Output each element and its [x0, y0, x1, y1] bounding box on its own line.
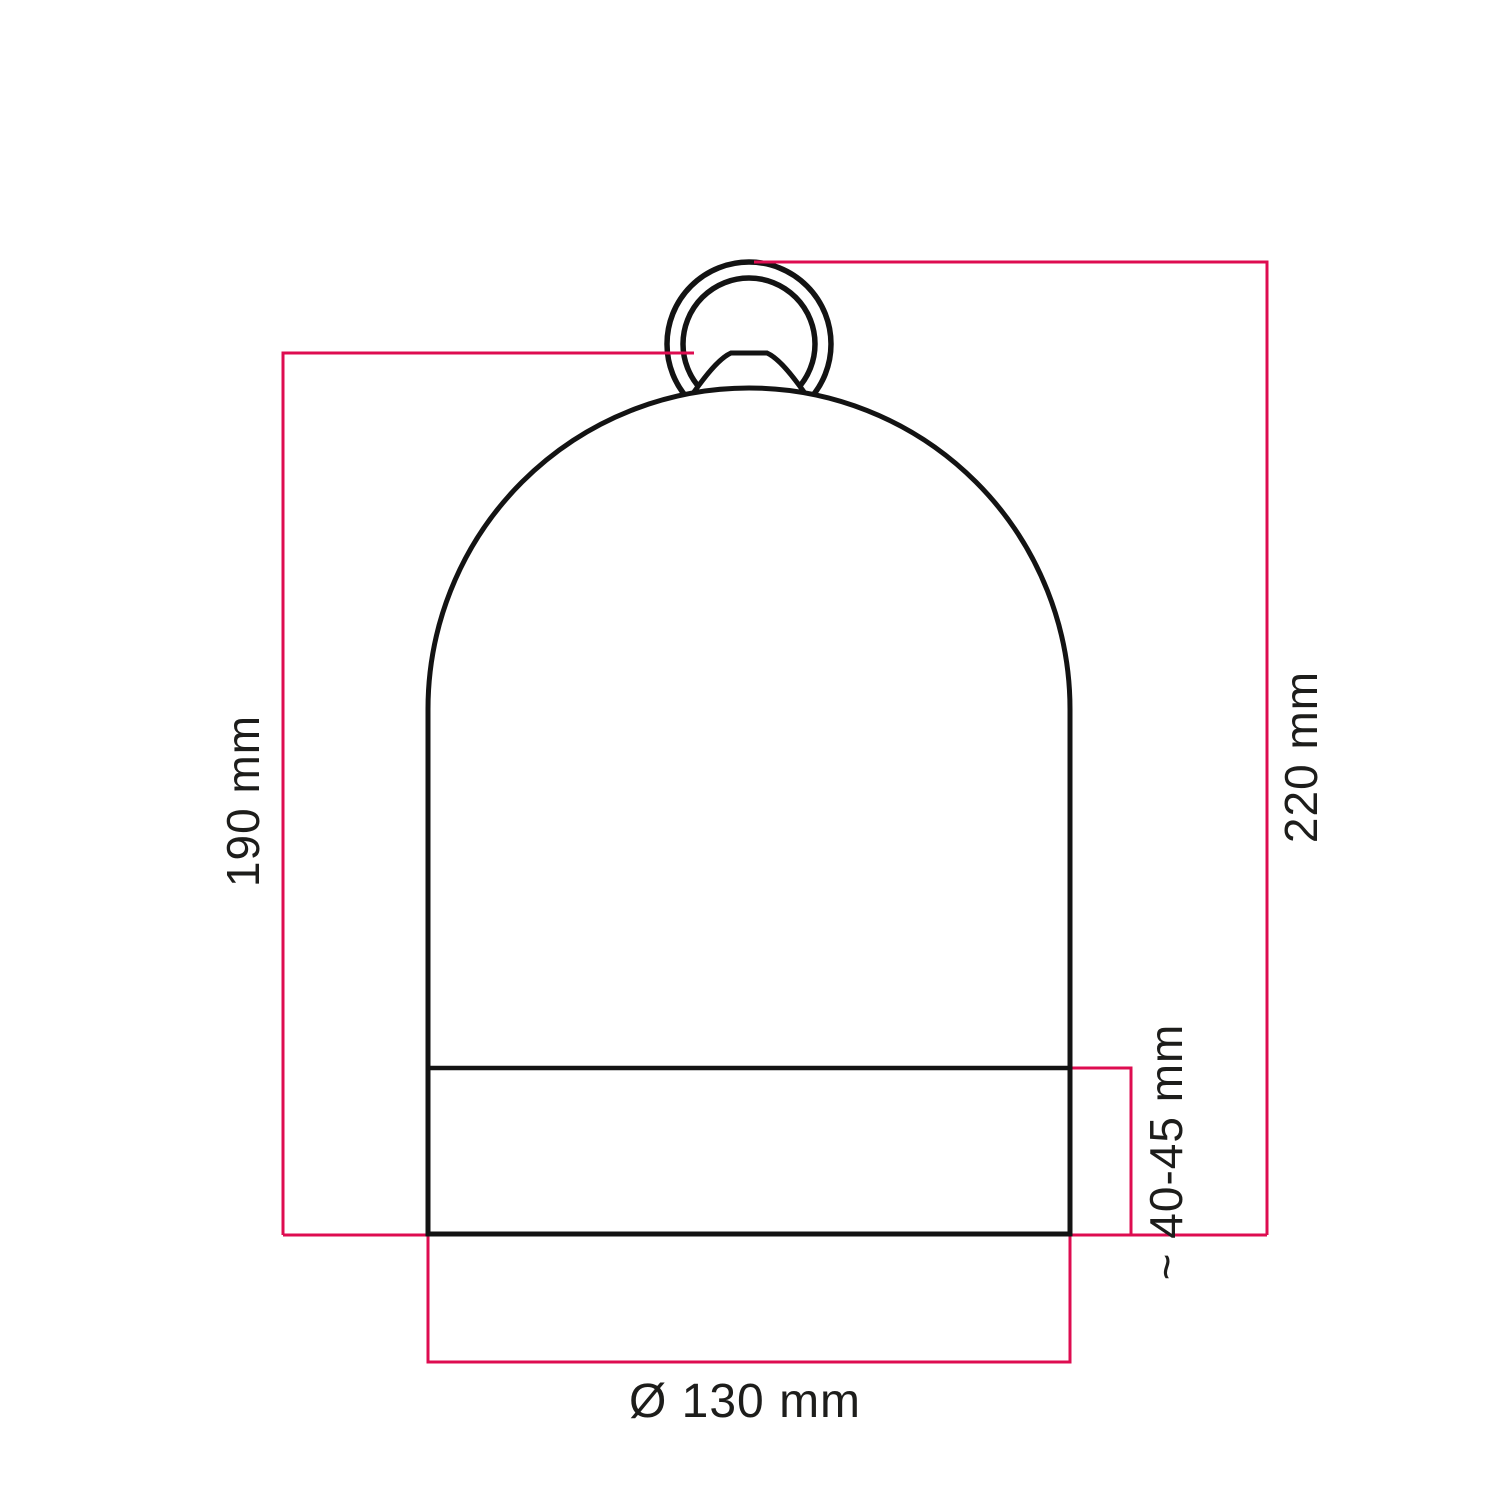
- dimension-diagram: 190 mm 220 mm ~ 40-45 mm Ø 130 mm: [0, 0, 1500, 1500]
- bell-body-fill: [428, 388, 1070, 1234]
- height-220-label: 220 mm: [1278, 671, 1324, 843]
- dimension-line-diameter-130: [428, 1235, 1070, 1362]
- height-190-label: 190 mm: [220, 715, 266, 887]
- band-height-label: ~ 40-45 mm: [1143, 1024, 1189, 1281]
- diameter-label: Ø 130 mm: [629, 1378, 861, 1426]
- dimension-line-band-40-45: [1070, 1068, 1131, 1235]
